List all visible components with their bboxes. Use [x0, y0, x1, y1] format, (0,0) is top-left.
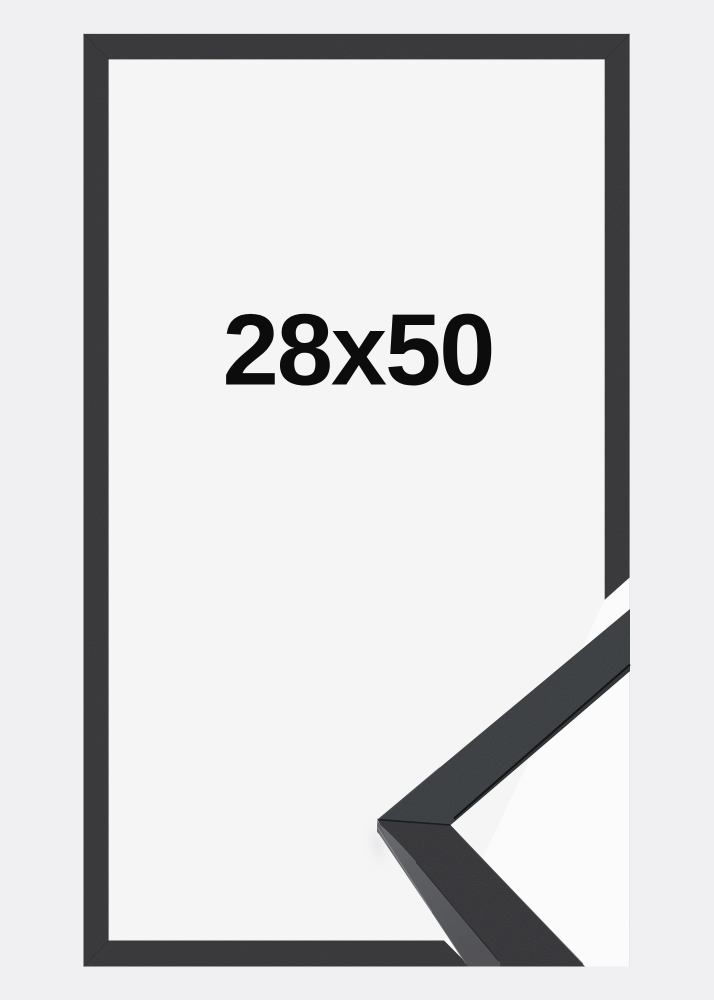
svg-text:28x50: 28x50	[223, 295, 494, 407]
